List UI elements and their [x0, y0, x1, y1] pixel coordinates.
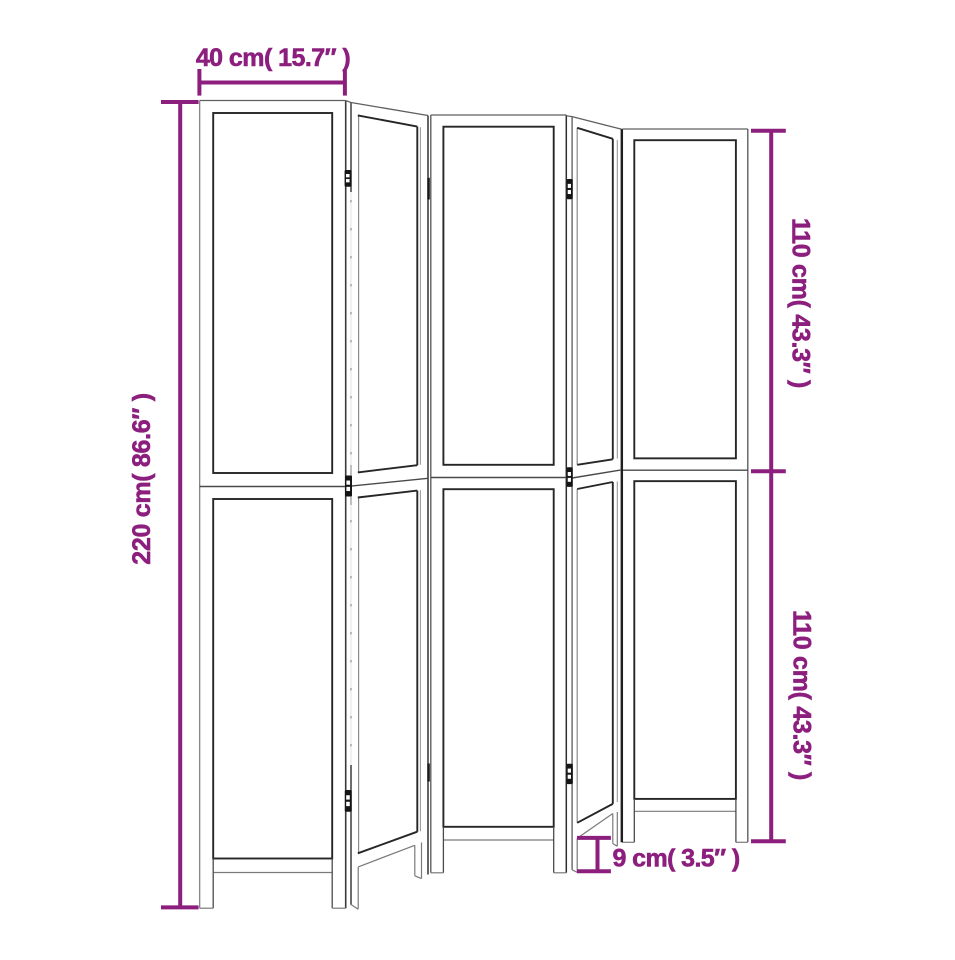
svg-text:9 cm( 3.5″ ): 9 cm( 3.5″ ): [613, 845, 740, 873]
svg-text:40 cm( 15.7″ ): 40 cm( 15.7″ ): [196, 44, 351, 72]
svg-text:110 cm( 43.3″ ): 110 cm( 43.3″ ): [788, 610, 816, 780]
svg-text:220 cm( 86.6″ ): 220 cm( 86.6″ ): [128, 393, 156, 564]
svg-text:110 cm( 43.3″ ): 110 cm( 43.3″ ): [787, 218, 815, 388]
